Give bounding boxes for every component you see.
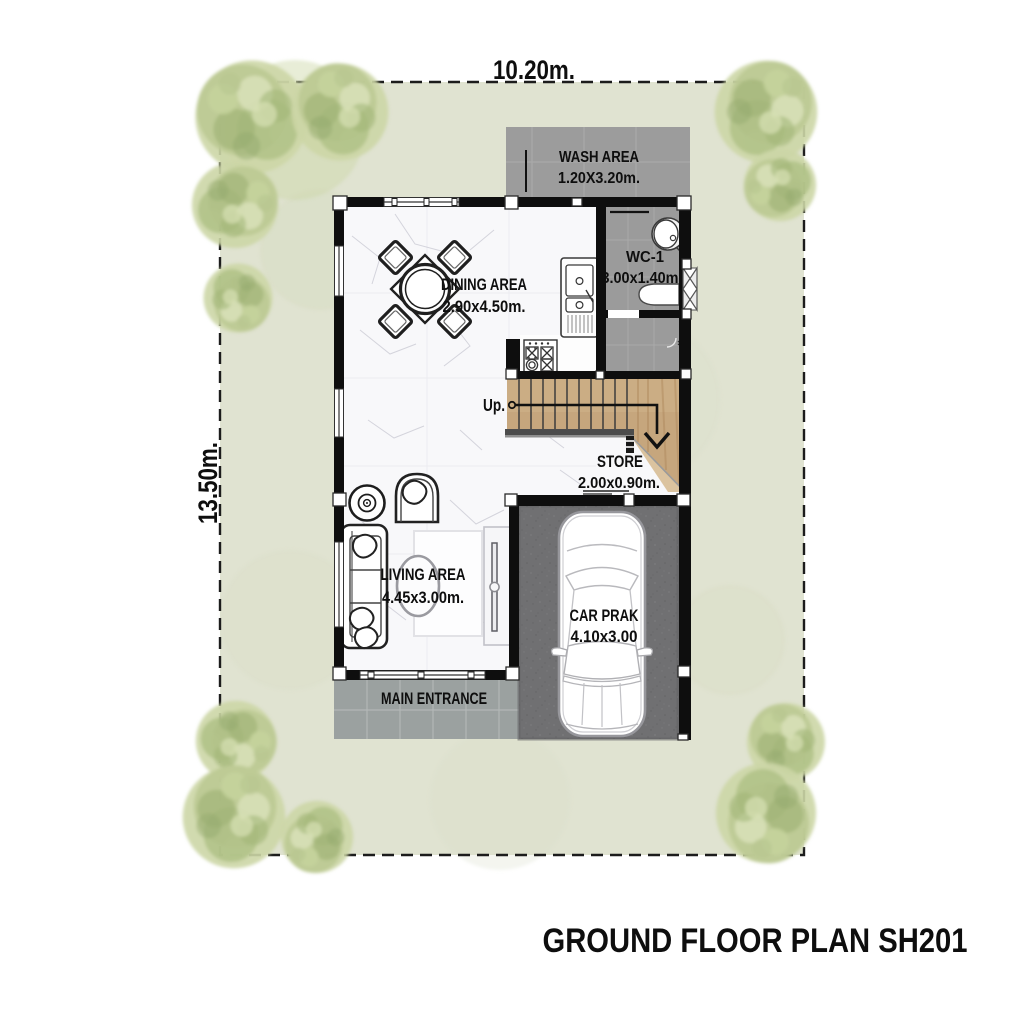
svg-text:GROUND FLOOR PLAN SH201: GROUND FLOOR PLAN SH201 <box>543 922 968 960</box>
svg-text:10.20m.: 10.20m. <box>493 55 575 85</box>
svg-text:Up.: Up. <box>483 395 505 415</box>
svg-text:CAR PRAK: CAR PRAK <box>570 607 639 625</box>
svg-text:WASH AREA: WASH AREA <box>559 149 639 166</box>
svg-text:WC-1: WC-1 <box>626 249 664 266</box>
svg-text:4.10x3.00: 4.10x3.00 <box>571 628 638 646</box>
svg-text:4.45x3.00m.: 4.45x3.00m. <box>382 588 464 607</box>
svg-text:STORE: STORE <box>597 453 643 471</box>
svg-text:13.50m.: 13.50m. <box>193 442 223 524</box>
svg-text:MAIN ENTRANCE: MAIN ENTRANCE <box>381 690 487 708</box>
svg-text:LIVING AREA: LIVING AREA <box>381 565 466 584</box>
svg-text:2.00x0.90m.: 2.00x0.90m. <box>578 475 660 492</box>
svg-text:1.20X3.20m.: 1.20X3.20m. <box>558 170 640 187</box>
svg-text:2.90x4.50m.: 2.90x4.50m. <box>443 297 526 316</box>
svg-text:DINING AREA: DINING AREA <box>441 275 527 294</box>
